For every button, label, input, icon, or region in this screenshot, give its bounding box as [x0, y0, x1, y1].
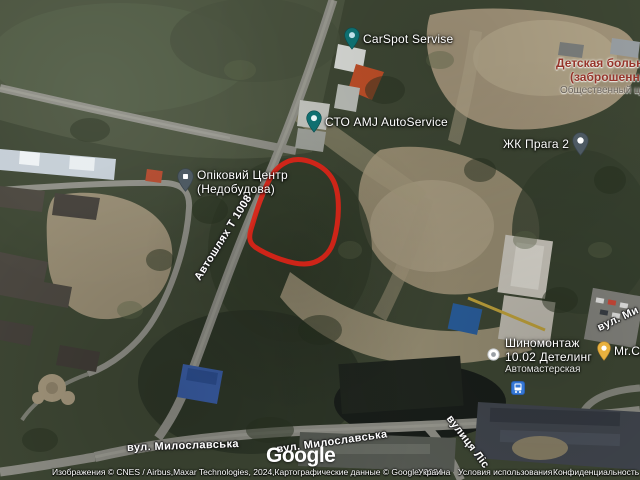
poi-label: 10.02 Детелинг — [505, 350, 592, 364]
attribution-bar: Изображения © CNES / Airbus,Maxar Techno… — [0, 467, 640, 479]
poi-hospital[interactable]: Детская больница (заброшенная Общественн… — [556, 56, 640, 96]
poi-label: Опіковий Центр — [197, 168, 288, 182]
attribution-country: Украина — [418, 467, 450, 477]
poi-label: Mr.Ca — [614, 344, 640, 358]
google-logo[interactable]: Google — [266, 444, 335, 468]
poi-label: (заброшенная — [570, 70, 640, 84]
satellite-imagery — [0, 0, 640, 480]
place-pin-icon — [597, 341, 611, 361]
poi-category-label: Общественный центр — [560, 85, 640, 96]
poi-mr-ca[interactable]: Mr.Ca — [597, 341, 640, 361]
bus-station-icon — [511, 381, 525, 395]
terms-link[interactable]: Условия использования — [458, 467, 552, 477]
poi-sto-amj[interactable]: СТО AMJ AutoService — [306, 110, 448, 133]
place-pin-icon — [572, 132, 589, 156]
poi-label: СТО AMJ AutoService — [325, 115, 448, 129]
map-canvas[interactable]: CarSpot Servise Детская больница (заброш… — [0, 0, 640, 480]
poi-label: ЖК Прага 2 — [503, 137, 569, 151]
transit-station[interactable] — [511, 381, 525, 395]
building-pin-icon — [177, 168, 194, 192]
poi-carspot[interactable]: CarSpot Servise — [344, 27, 453, 50]
privacy-link[interactable]: Конфиденциальность — [553, 467, 639, 477]
service-dot-icon — [487, 348, 500, 361]
attribution-text: Изображения © CNES / Airbus,Maxar Techno… — [52, 467, 442, 477]
poi-label: Детская больница — [556, 56, 640, 70]
poi-shinomontazh[interactable]: Шиномонтаж 10.02 Детелинг Автомастерская — [487, 336, 592, 375]
poi-label: CarSpot Servise — [363, 32, 453, 46]
place-pin-icon — [306, 110, 322, 133]
poi-zhk-praga[interactable]: ЖК Прага 2 — [503, 132, 589, 156]
poi-category-label: Автомастерская — [505, 364, 592, 375]
poi-label: Шиномонтаж — [505, 336, 592, 350]
place-pin-icon — [344, 27, 360, 50]
poi-opikovyi[interactable]: Опіковий Центр (Недобудова) — [177, 168, 288, 196]
